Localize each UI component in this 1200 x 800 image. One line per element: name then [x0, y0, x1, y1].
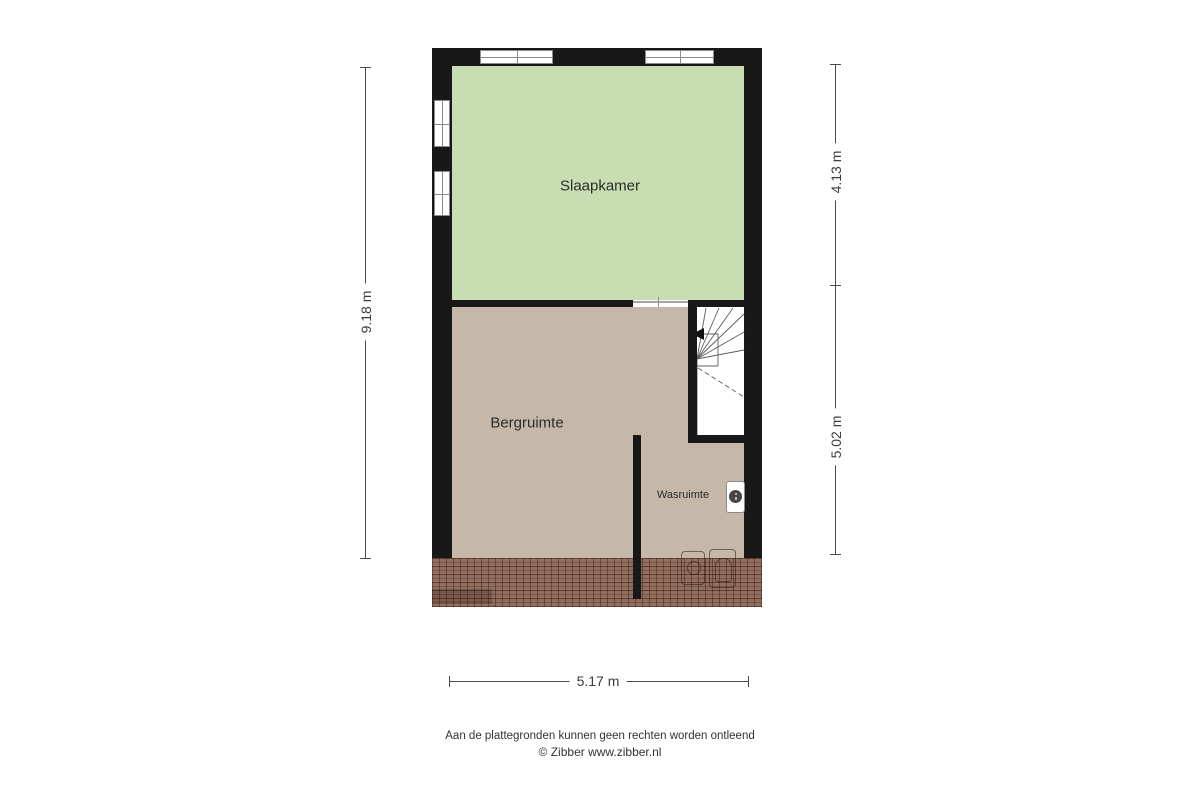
roof-window-icon [681, 551, 705, 585]
window-icon [434, 100, 450, 147]
doorway-tick [658, 297, 659, 307]
stairs-winder-icon [688, 300, 754, 445]
dimension-tick [360, 67, 371, 68]
boiler-icon [726, 481, 745, 513]
dimension-label-height-total: 9.18 m [356, 284, 376, 341]
stair-wall-left [688, 307, 697, 443]
dimension-label-height-top: 4.13 m [826, 144, 846, 201]
dimension-label-height-bottom: 5.02 m [826, 409, 846, 466]
boiler-drum [729, 490, 742, 503]
roof-chimney-icon [709, 549, 736, 588]
dimension-tick [360, 558, 371, 559]
roof-edge-step [432, 589, 492, 604]
dimension-tick [449, 676, 450, 687]
wall-wasruimte-partition [633, 435, 641, 599]
floorplan-canvas: Slaapkamer Bergruimte Wasruimte 9.18 m 4… [0, 0, 1200, 800]
dimension-line-right [835, 64, 836, 555]
stair-wall-bottom [688, 435, 747, 443]
window-icon [434, 171, 450, 216]
dimension-tick [830, 285, 841, 286]
footer-credit: © Zibber www.zibber.nl [0, 745, 1200, 759]
dimension-tick [830, 64, 841, 65]
room-label-slaapkamer: Slaapkamer [560, 178, 640, 195]
doorway-threshold [633, 301, 688, 303]
window-icon [645, 50, 714, 64]
dimension-tick [748, 676, 749, 687]
room-label-wasruimte: Wasruimte [657, 489, 709, 501]
dimension-label-width: 5.17 m [570, 671, 627, 691]
wall-middle-left-segment [452, 300, 633, 307]
window-icon [480, 50, 553, 64]
dimension-tick [830, 554, 841, 555]
footer-disclaimer: Aan de plattegronden kunnen geen rechten… [0, 730, 1200, 742]
room-label-bergruimte: Bergruimte [490, 415, 563, 432]
